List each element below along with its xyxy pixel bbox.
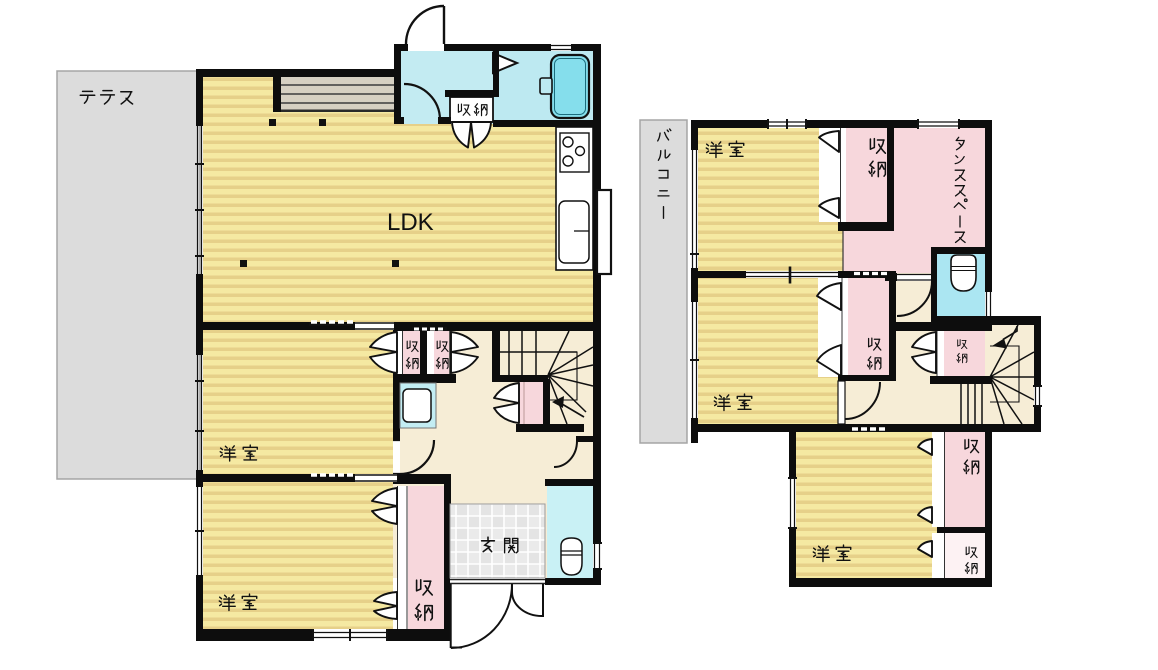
svg-text:LDK: LDK — [387, 209, 434, 236]
